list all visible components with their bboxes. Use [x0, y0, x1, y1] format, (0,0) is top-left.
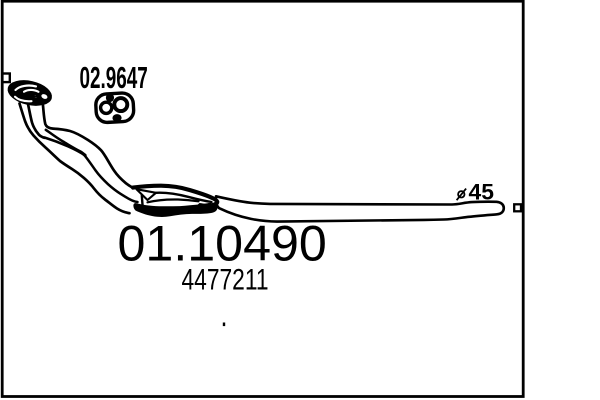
- svg-text:02.9647: 02.9647: [80, 62, 148, 96]
- svg-text:45: 45: [469, 180, 494, 205]
- svg-text:4477211: 4477211: [182, 262, 269, 296]
